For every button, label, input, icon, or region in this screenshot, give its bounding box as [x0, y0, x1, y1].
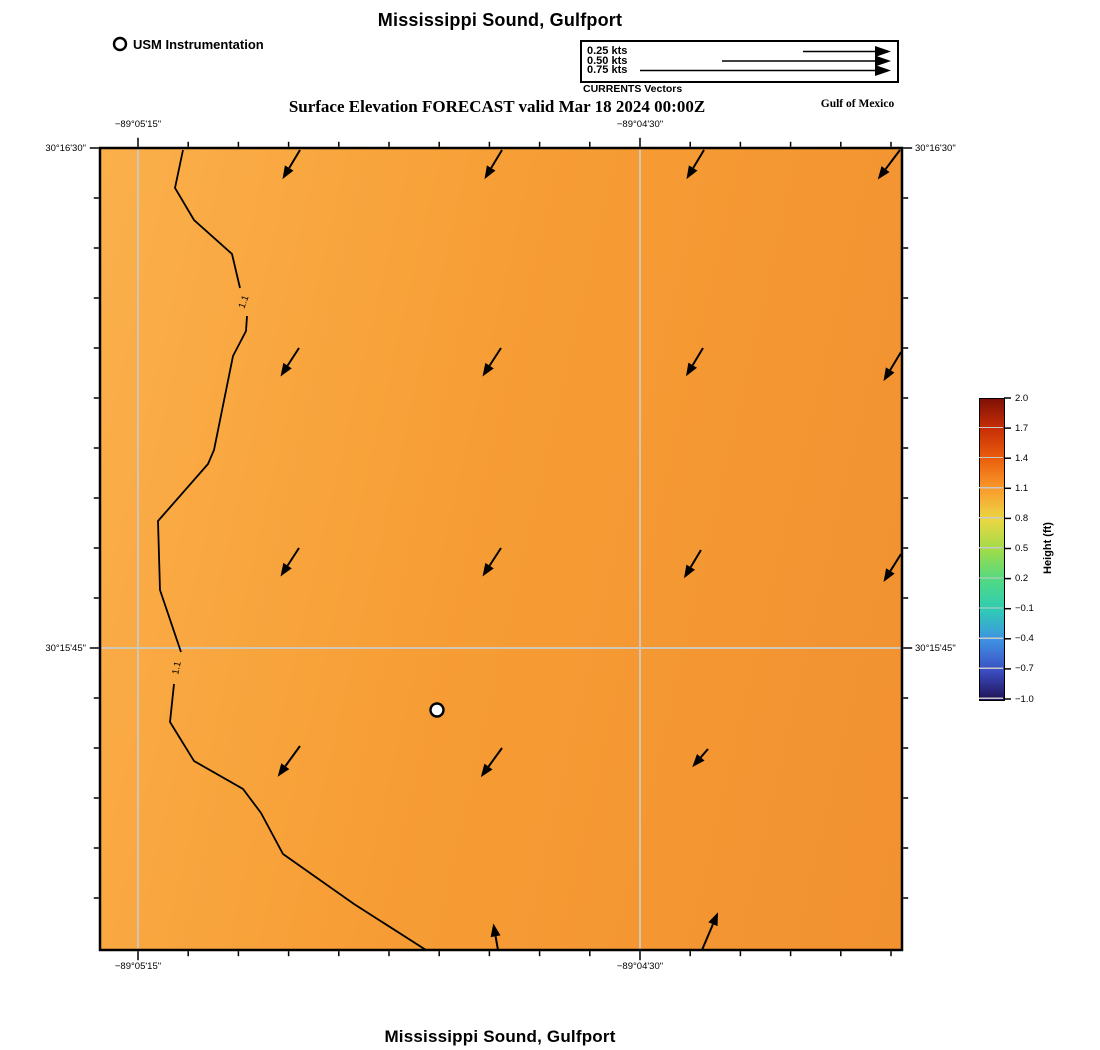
- colorbar-tick-label: 0.5: [1015, 543, 1028, 554]
- vector-legend-speed-075: 0.75 kts: [587, 65, 627, 76]
- colorbar-tick-label: −0.1: [1015, 603, 1034, 614]
- y-axis-label-left-top: 30°16'30": [26, 143, 86, 154]
- colorbar-tick-label: −0.4: [1015, 633, 1034, 644]
- instrument-legend-marker: [114, 38, 126, 50]
- vector-legend-box: [580, 40, 899, 83]
- x-axis-label-top-left: −89°05'15": [115, 119, 161, 130]
- colorbar-tick-label: −1.0: [1015, 694, 1034, 705]
- map-surface: [100, 148, 902, 950]
- gulf-of-mexico-label: Gulf of Mexico: [800, 98, 915, 110]
- colorbar-tick-label: 0.2: [1015, 573, 1028, 584]
- colorbar-title: Height (ft): [1042, 522, 1054, 574]
- vector-legend-caption: CURRENTS Vectors: [583, 83, 682, 95]
- y-axis-label-right-mid: 30°15'45": [915, 643, 956, 654]
- instrumentation-legend-label: USM Instrumentation: [133, 37, 264, 52]
- colorbar-tick-label: 1.1: [1015, 483, 1028, 494]
- colorbar-tick-label: 1.7: [1015, 423, 1028, 434]
- x-axis-label-top-right: −89°04'30": [617, 119, 663, 130]
- colorbar-tick-label: 0.8: [1015, 513, 1028, 524]
- y-axis-label-left-mid: 30°15'45": [26, 643, 86, 654]
- colorbar-tick-label: 2.0: [1015, 393, 1028, 404]
- colorbar-segment-lines: [979, 398, 1003, 699]
- x-axis-label-bottom-right: −89°04'30": [617, 961, 663, 972]
- subtitle: Surface Elevation FORECAST valid Mar 18 …: [157, 97, 837, 117]
- x-axis-label-bottom-left: −89°05'15": [115, 961, 161, 972]
- bottom-title: Mississippi Sound, Gulfport: [160, 1027, 840, 1047]
- colorbar-tick-label: 1.4: [1015, 453, 1028, 464]
- figure-canvas: Mississippi Sound, Gulfport Surface Elev…: [0, 0, 1100, 1050]
- y-axis-label-right-top: 30°16'30": [915, 143, 956, 154]
- top-title: Mississippi Sound, Gulfport: [160, 10, 840, 31]
- colorbar-tick-label: −0.7: [1015, 663, 1034, 674]
